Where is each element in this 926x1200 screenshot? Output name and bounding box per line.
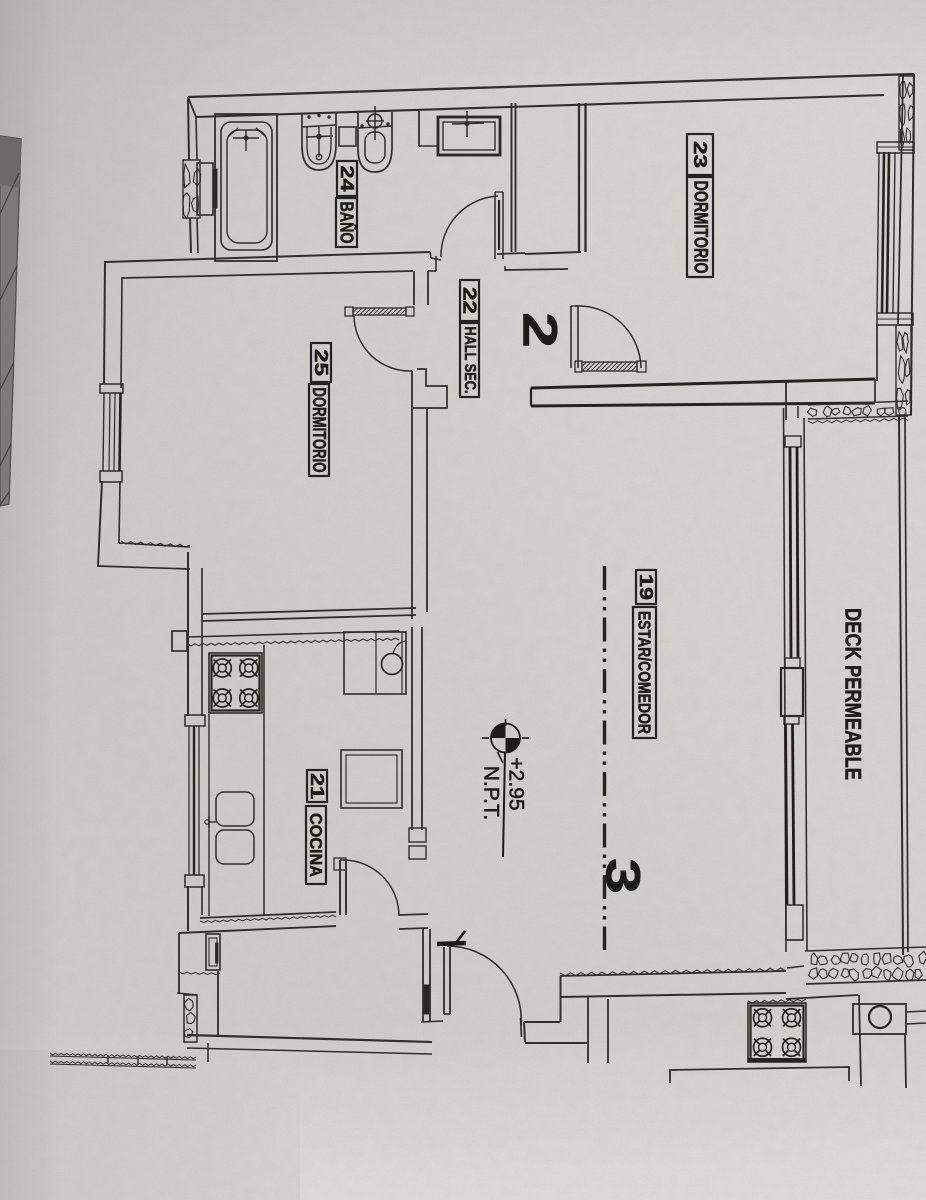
svg-text:COCINA: COCINA: [306, 813, 326, 877]
svg-text:24: 24: [337, 166, 357, 192]
svg-text:N.P.T.: N.P.T.: [480, 766, 503, 820]
svg-text:+2.95: +2.95: [505, 757, 528, 810]
svg-text:HALL SEC.: HALL SEC.: [461, 327, 478, 394]
svg-text:ESTAR/COMEDOR: ESTAR/COMEDOR: [635, 611, 655, 734]
svg-text:21: 21: [307, 773, 327, 799]
svg-text:2: 2: [513, 312, 566, 348]
svg-text:DORMITORIO: DORMITORIO: [690, 181, 711, 274]
svg-text:DECK PERMEABLE: DECK PERMEABLE: [841, 608, 866, 780]
svg-text:23: 23: [690, 141, 710, 168]
svg-text:DORMITORIO: DORMITORIO: [309, 388, 329, 473]
svg-text:BAÑO: BAÑO: [337, 202, 358, 244]
svg-text:22: 22: [460, 287, 480, 314]
svg-text:3: 3: [596, 858, 649, 894]
svg-text:19: 19: [636, 574, 656, 600]
svg-text:25: 25: [311, 349, 331, 376]
